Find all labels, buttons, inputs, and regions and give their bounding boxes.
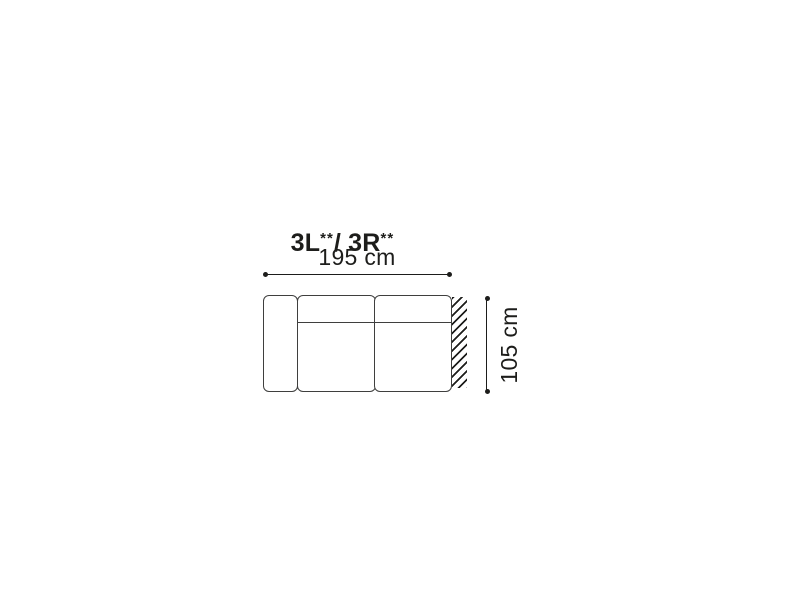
depth-dimension-endpoint-bottom xyxy=(485,389,490,394)
sofa-left-armrest xyxy=(263,295,298,392)
width-dimension-label: 195 cm xyxy=(265,244,449,271)
sofa-backrest-line-left xyxy=(298,322,375,323)
depth-dimension-label: 105 cm xyxy=(496,295,518,395)
connector-hatch-area xyxy=(452,297,467,388)
width-dimension-line xyxy=(265,274,449,275)
sofa-seat-left xyxy=(297,295,376,392)
depth-dimension-line xyxy=(486,298,487,391)
depth-dimension-endpoint-top xyxy=(485,296,490,301)
sofa-dimension-diagram: 3L**/ 3R** 195 cm 105 cm xyxy=(0,0,800,600)
width-dimension-endpoint-left xyxy=(263,272,268,277)
width-dimension-endpoint-right xyxy=(447,272,452,277)
sofa-seat-right xyxy=(374,295,452,392)
sofa-backrest-line-right xyxy=(375,322,451,323)
